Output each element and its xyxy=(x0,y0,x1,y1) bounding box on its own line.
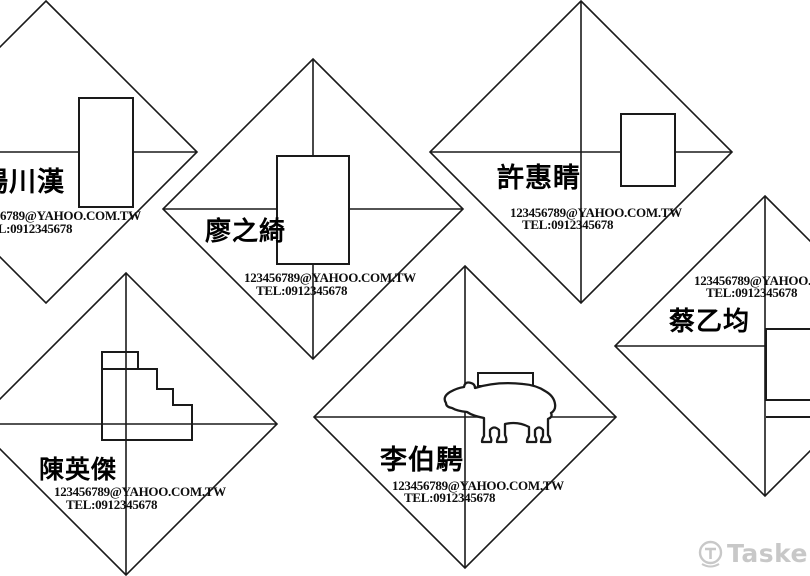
card-3-rectangle-logo xyxy=(621,114,675,186)
card-5-bear-icon xyxy=(445,383,556,443)
card-5-person-name[interactable]: 李伯騁 xyxy=(380,447,464,475)
card-1-person-name[interactable]: 楊川漢 xyxy=(0,169,65,197)
card-2-tel[interactable]: TEL:0912345678 xyxy=(256,284,347,298)
card-5-diamond[interactable] xyxy=(314,266,616,568)
card-4-tel[interactable]: TEL:0912345678 xyxy=(66,498,157,512)
tasker-logo-icon xyxy=(697,540,724,568)
card-4-diamond[interactable] xyxy=(0,273,277,575)
card-1-rectangle-logo xyxy=(79,98,133,207)
card-3-person-name[interactable]: 許惠睛 xyxy=(497,165,581,193)
card-6-tel[interactable]: TEL:0912345678 xyxy=(706,286,797,300)
card-1-tel[interactable]: TEL:0912345678 xyxy=(0,222,72,236)
card-6-rectangle-logo xyxy=(766,329,810,400)
card-4-stairs-icon xyxy=(102,352,192,440)
watermark: Tasker xyxy=(697,539,810,568)
design-canvas: 楊川漢 123456789@YAHOO.COM.TW TEL:091234567… xyxy=(0,0,810,576)
card-1-diamond[interactable] xyxy=(0,1,197,303)
card-5-tel[interactable]: TEL:0912345678 xyxy=(404,491,495,505)
card-3-diamond[interactable] xyxy=(430,1,732,303)
card-6-diamond[interactable] xyxy=(615,196,810,496)
card-6-person-name[interactable]: 蔡乙均 xyxy=(669,309,750,336)
card-2-person-name[interactable]: 廖之綺 xyxy=(205,219,286,246)
card-2-rectangle-logo xyxy=(277,156,349,264)
card-3-tel[interactable]: TEL:0912345678 xyxy=(522,218,613,232)
watermark-label: Tasker xyxy=(727,539,810,568)
card-4-person-name[interactable]: 陳英傑 xyxy=(39,457,117,483)
